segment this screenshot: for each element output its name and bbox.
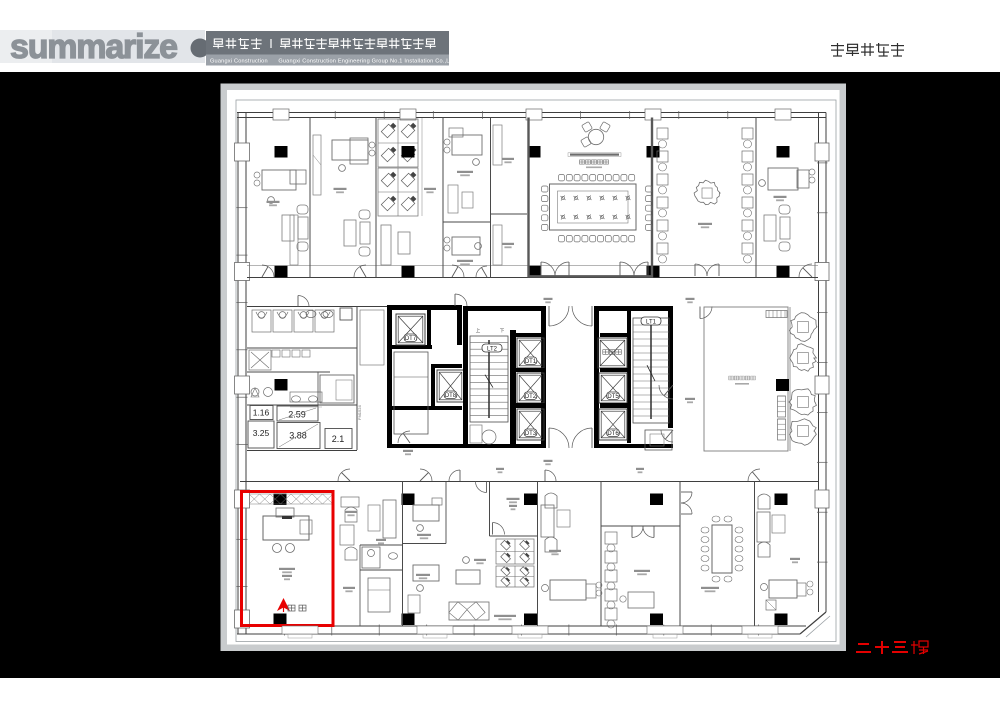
svg-text:3.25: 3.25 [253, 428, 270, 438]
svg-text:DT8: DT8 [445, 393, 457, 399]
svg-text:DT5: DT5 [607, 394, 619, 400]
svg-text:summarize: summarize [10, 28, 177, 66]
svg-text:DT6: DT6 [607, 431, 619, 437]
svg-text:LT2: LT2 [487, 347, 498, 353]
svg-text:2.59: 2.59 [288, 410, 306, 420]
svg-text:2.1: 2.1 [332, 434, 345, 444]
svg-text:DT7: DT7 [405, 336, 417, 342]
svg-text:DT3: DT3 [525, 431, 537, 437]
svg-text:LT1: LT1 [646, 320, 657, 326]
svg-text:Guangxi Construction Guan: Guangxi Construction Guangxi Constructio… [210, 59, 455, 65]
svg-text:FM1524: FM1524 [357, 405, 362, 420]
svg-text:上: 上 [476, 327, 481, 333]
svg-text:1.16: 1.16 [253, 408, 270, 418]
svg-text:DT1: DT1 [525, 359, 537, 365]
svg-text:DT2: DT2 [525, 394, 537, 400]
